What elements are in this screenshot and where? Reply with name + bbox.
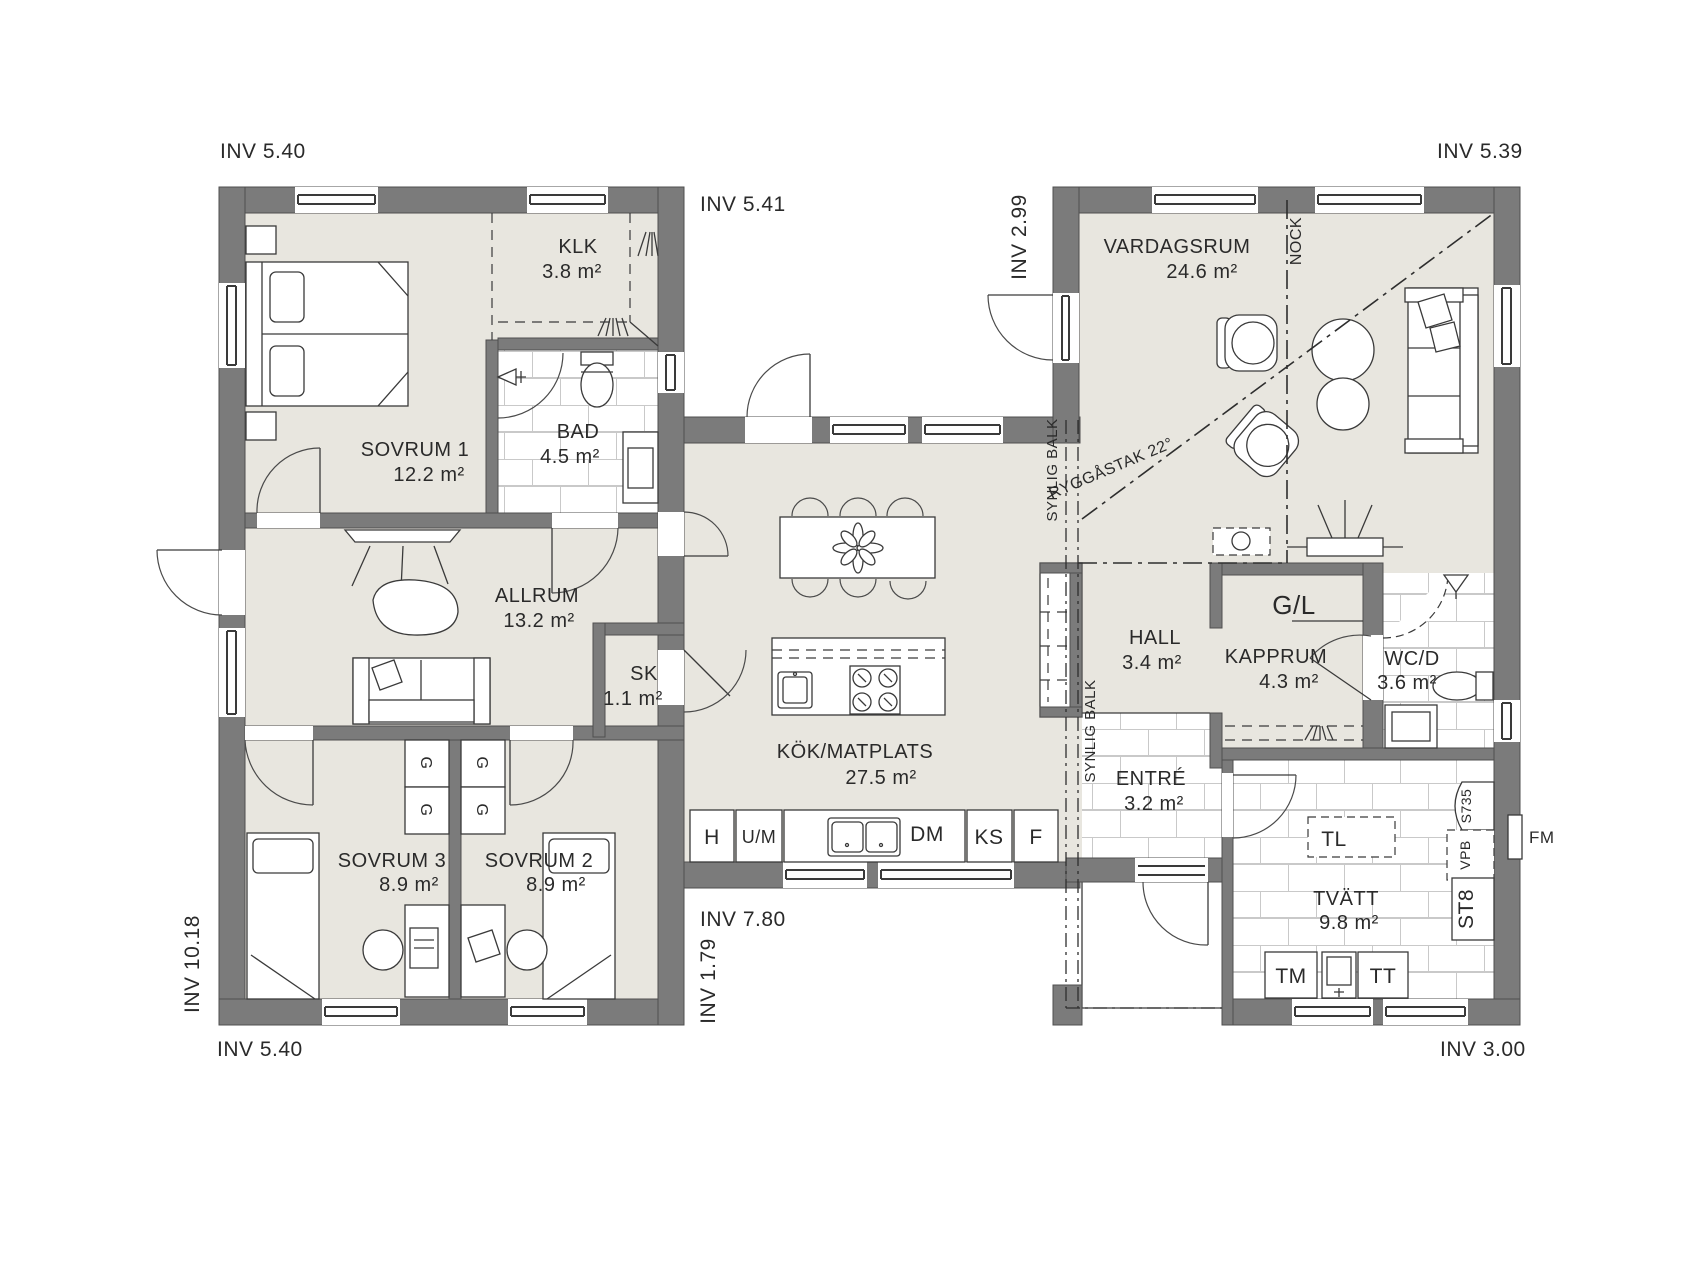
dim-top-right: INV 5.39 [1437, 140, 1523, 163]
room-area-allrum: 13.2 m² [503, 610, 574, 632]
floor-plan-page: G G G G [0, 0, 1707, 1280]
window [1315, 187, 1424, 213]
counter-label-h: H [704, 826, 720, 849]
dim-mid-top: INV 5.41 [700, 193, 786, 216]
wardrobe-g-label: G [473, 804, 490, 817]
chair [507, 930, 547, 970]
room-area-tvatt: 9.8 m² [1319, 912, 1379, 934]
window [508, 999, 587, 1025]
room-label-vardagsrum: VARDAGSRUM [1104, 236, 1251, 258]
room-label-bad: BAD [557, 421, 600, 443]
kitchen-counter: H U/M DM KS F [690, 810, 1058, 862]
room-area-kapprum: 4.3 m² [1259, 671, 1319, 693]
window [1494, 285, 1520, 367]
dim-top-left: INV 5.40 [220, 140, 306, 163]
window [830, 417, 908, 443]
window [219, 283, 245, 368]
counter-label-um: U/M [742, 827, 777, 847]
window [878, 862, 1014, 888]
window [295, 187, 378, 213]
room-area-vardagsrum: 24.6 m² [1166, 261, 1237, 283]
room-area-bad: 4.5 m² [540, 446, 600, 468]
ceiling-lamp [1213, 528, 1270, 555]
dim-mid-bottom-v: INV 1.79 [697, 938, 720, 1024]
label-synlig-balk-2: SYNLIG BALK [1082, 679, 1099, 782]
room-label-tvatt: TVÄTT [1313, 888, 1379, 910]
label-fm: FM [1529, 828, 1555, 847]
porch-floor [1079, 882, 1222, 999]
door-kitchen-terrace [745, 354, 812, 443]
dim-bottom-left: INV 5.40 [217, 1038, 303, 1061]
label-gl: G/L [1272, 590, 1315, 620]
room-area-sovrum1: 12.2 m² [393, 464, 464, 486]
side-table [1317, 378, 1369, 430]
window [658, 352, 684, 393]
window [219, 628, 245, 717]
counter-label-dm: DM [910, 823, 944, 846]
room-area-sovrum3: 8.9 m² [379, 874, 439, 896]
projector-screen [345, 530, 460, 542]
room-area-entre: 3.2 m² [1124, 793, 1184, 815]
side-table [1312, 319, 1374, 381]
counter-label-ks: KS [974, 826, 1003, 849]
room-label-sovrum1: SOVRUM 1 [361, 439, 469, 461]
room-label-allrum: ALLRUM [495, 585, 579, 607]
room-area-kok: 27.5 m² [845, 767, 916, 789]
room-area-sovrum2: 8.9 m² [526, 874, 586, 896]
room-label-sovrum3: SOVRUM 3 [338, 850, 446, 872]
dim-bottom-right: INV 3.00 [1440, 1038, 1526, 1061]
dim-wing-gap: INV 2.99 [1008, 194, 1031, 280]
room-label-hall: HALL [1129, 627, 1181, 649]
label-s735: S735 [1458, 789, 1474, 824]
sofa [1405, 288, 1478, 453]
label-synlig-balk-1: SYNLIG BALK [1044, 418, 1061, 521]
toilet-icon [1433, 672, 1481, 700]
window [922, 417, 1003, 443]
label-nock: NOCK [1288, 217, 1305, 265]
room-area-klk: 3.8 m² [542, 261, 602, 283]
label-tm: TM [1275, 965, 1306, 988]
room-label-entre: ENTRÉ [1116, 767, 1186, 790]
room-label-wcd: WC/D [1384, 648, 1439, 670]
hall-cabinet [1040, 563, 1082, 717]
window [1494, 700, 1520, 742]
wardrobe-g-label: G [417, 804, 434, 817]
room-area-sk: 1.1 m² [603, 688, 663, 710]
room-label-klk: KLK [558, 236, 597, 258]
armchair [1217, 315, 1277, 371]
label-vpb: VPB [1457, 840, 1473, 870]
fm-box [1508, 815, 1522, 859]
window [1292, 999, 1373, 1025]
dim-mid-bottom: INV 7.80 [700, 908, 786, 931]
door-vardagsrum-exterior [988, 293, 1079, 363]
chair [363, 930, 403, 970]
wardrobe-g-label: G [473, 757, 490, 770]
window [527, 187, 608, 213]
door-allrum-exterior [157, 550, 245, 615]
room-label-sk: SK [630, 663, 658, 685]
room-area-wcd: 3.6 m² [1377, 672, 1437, 694]
dim-left-side: INV 10.18 [181, 915, 204, 1013]
label-tt: TT [1370, 965, 1397, 988]
room-label-kok: KÖK/MATPLATS [777, 741, 933, 763]
window [783, 862, 867, 888]
beanbag [373, 580, 458, 635]
label-tl: TL [1321, 828, 1347, 851]
window [1383, 999, 1468, 1025]
room-area-hall: 3.4 m² [1122, 652, 1182, 674]
window [322, 999, 400, 1025]
wardrobe-g-label: G [417, 757, 434, 770]
toilet-icon [581, 363, 613, 407]
label-st8: ST8 [1455, 889, 1478, 929]
room-label-sovrum2: SOVRUM 2 [485, 850, 593, 872]
window [1152, 187, 1258, 213]
counter-label-f: F [1029, 826, 1042, 849]
room-label-kapprum: KAPPRUM [1225, 646, 1327, 668]
floor-plan-drawing: G G G G [0, 0, 1707, 1280]
